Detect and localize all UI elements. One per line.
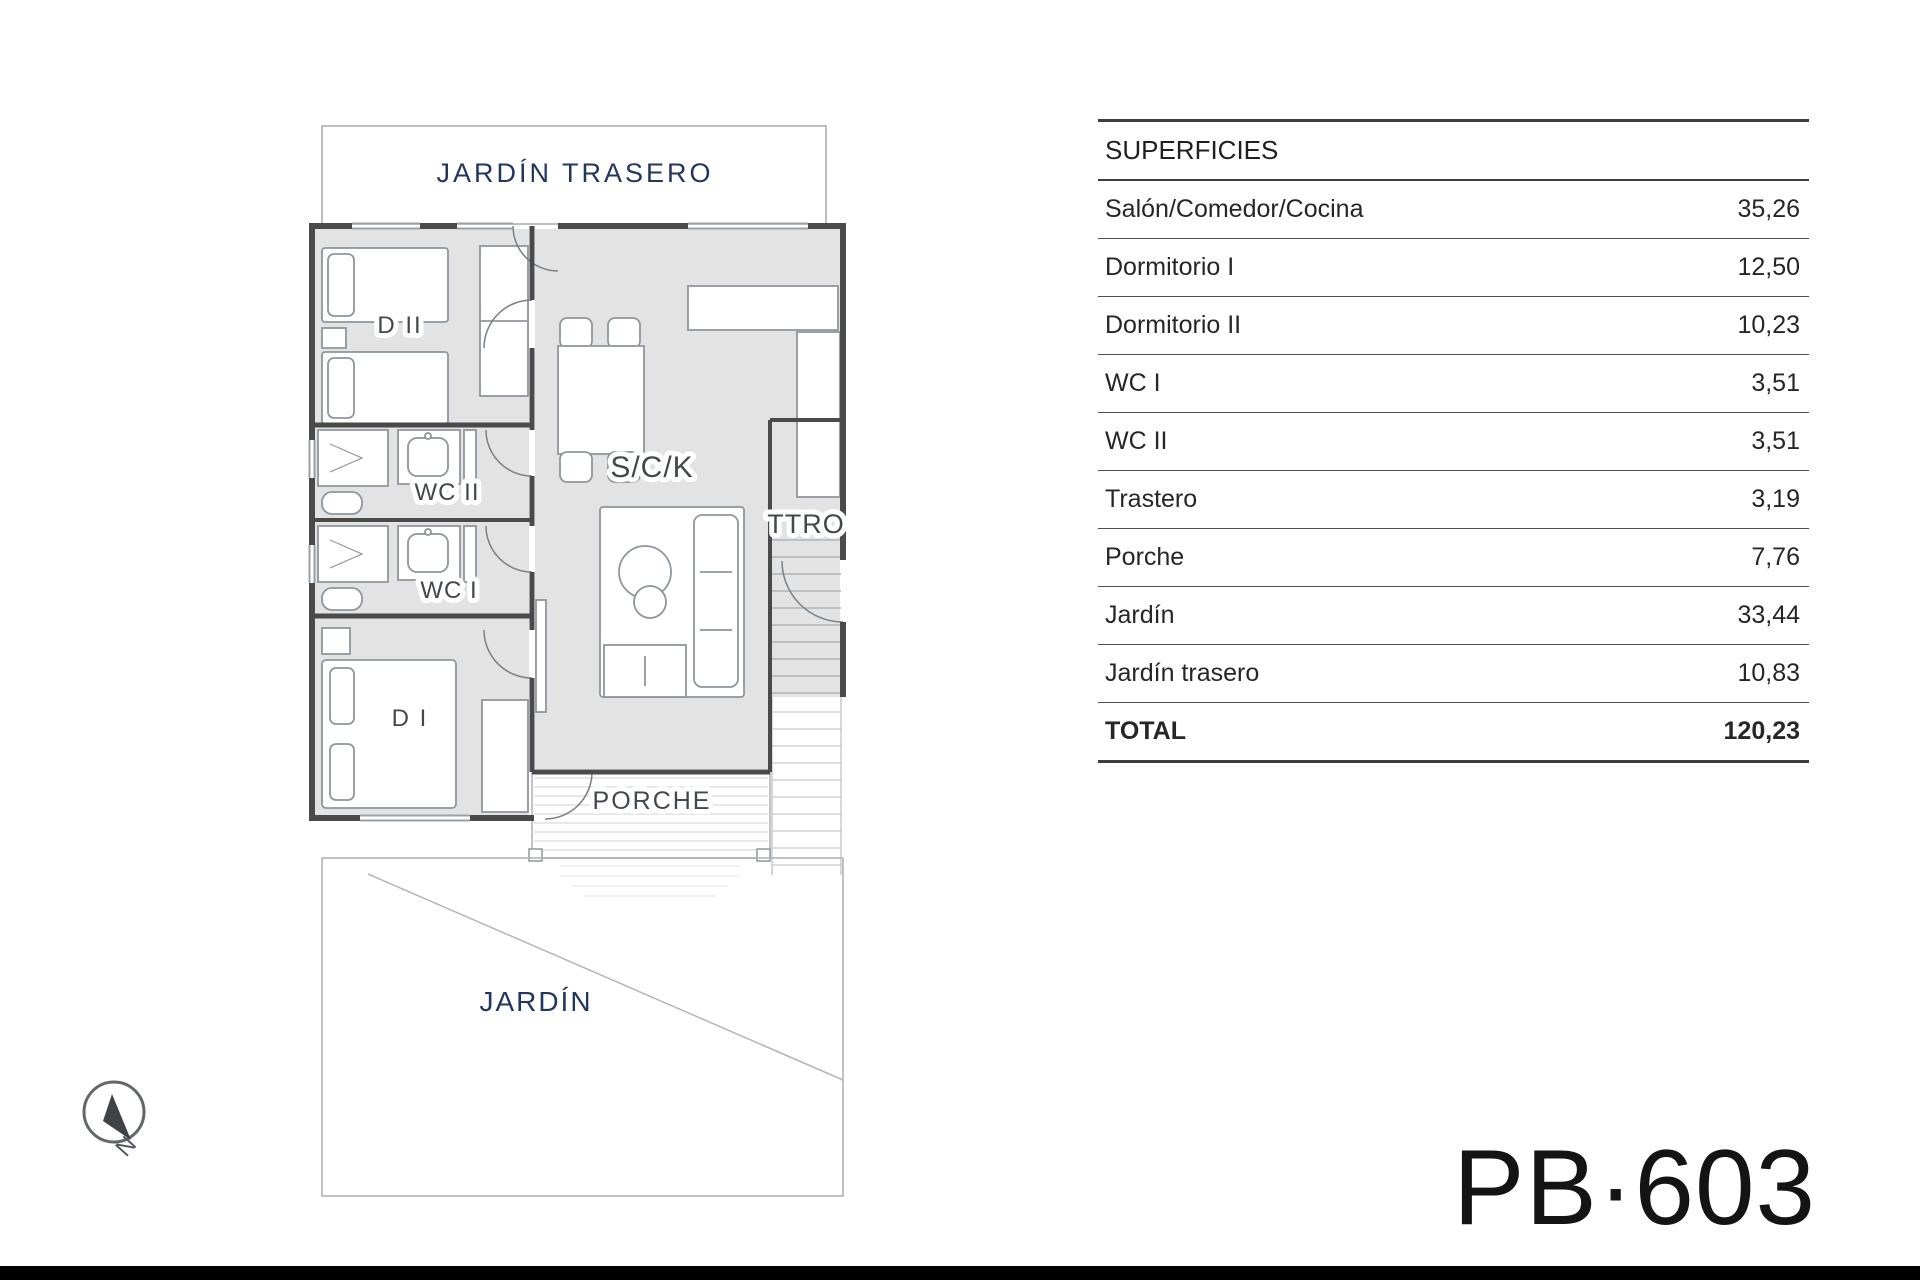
room-label-jardin-trasero: JARDÍN TRASERO [436,158,713,188]
room-label-sck: S/C/K [610,451,693,484]
table-header-title: SUPERFICIES [1105,135,1278,166]
room-label-wc2: WC II [415,479,480,506]
area-jardin: JARDÍN [322,858,843,1196]
row-label: Trastero [1105,485,1197,514]
room-label-d2: D II [377,312,422,339]
row-label: Salón/Comedor/Cocina [1105,195,1363,224]
table-row: Dormitorio I 12,50 [1098,239,1809,297]
room-label-jardin: JARDÍN [479,986,592,1017]
table-row: Salón/Comedor/Cocina 35,26 [1098,181,1809,239]
plan-code: PB·603 [1453,1134,1816,1241]
room-label-ttro: TTRO [767,509,845,539]
table-row: Jardín 33,44 [1098,587,1809,645]
compass-north-label: N [110,1131,142,1162]
table-total-row: TOTAL 120,23 [1098,703,1809,763]
total-value: 120,23 [1724,717,1800,746]
row-value: 10,23 [1737,311,1800,340]
table-row: Jardín trasero 10,83 [1098,645,1809,703]
table-row: Dormitorio II 10,23 [1098,297,1809,355]
table-row: Porche 7,76 [1098,529,1809,587]
total-label: TOTAL [1105,717,1186,746]
porch-outline [529,772,770,861]
row-value: 10,83 [1737,659,1800,688]
table-row: Trastero 3,19 [1098,471,1809,529]
row-value: 3,51 [1751,427,1800,456]
room-label-porche: PORCHE [593,787,712,815]
row-label: WC II [1105,427,1168,456]
row-label: Porche [1105,543,1184,572]
row-label: Dormitorio I [1105,253,1234,282]
compass: N [84,1082,144,1162]
room-label-wc1: WC I [420,577,477,604]
area-jardin-trasero: JARDÍN TRASERO [322,126,826,224]
row-value: 35,26 [1737,195,1800,224]
room-label-d1: D I [392,705,429,732]
row-label: Jardín [1105,601,1174,630]
row-label: Jardín trasero [1105,659,1259,688]
row-value: 3,19 [1751,485,1800,514]
row-label: WC I [1105,369,1161,398]
row-value: 7,76 [1751,543,1800,572]
row-value: 3,51 [1751,369,1800,398]
table-header-row: SUPERFICIES [1098,122,1809,181]
row-value: 33,44 [1737,601,1800,630]
bottom-bar [0,1266,1920,1280]
row-value: 12,50 [1737,253,1800,282]
table-row: WC II 3,51 [1098,413,1809,471]
floorplan-sheet: JARDÍN TRASERO JARDÍN [0,0,1920,1280]
row-label: Dormitorio II [1105,311,1241,340]
table-row: WC I 3,51 [1098,355,1809,413]
superficies-table: SUPERFICIES Salón/Comedor/Cocina 35,26 D… [1098,119,1809,763]
